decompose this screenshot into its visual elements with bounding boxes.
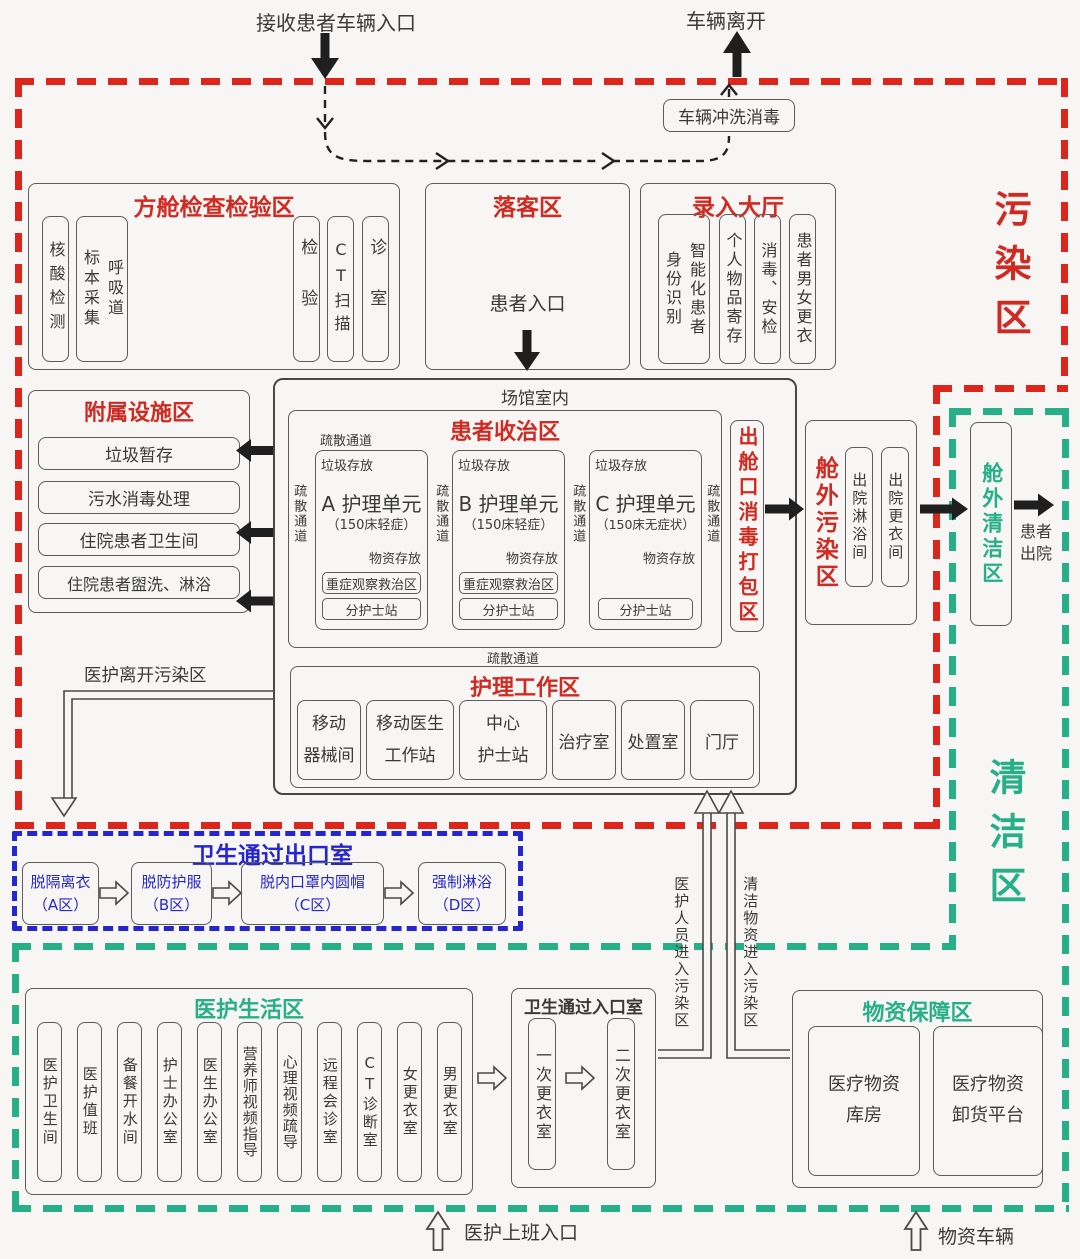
intake-item-deposit: 个人物品寄存	[719, 214, 746, 364]
outside-dirty-title: 舱外污染区	[808, 448, 840, 598]
zone-label-clean: 清洁区	[986, 758, 1023, 943]
exam-item-clinic: 诊室	[362, 216, 389, 362]
unit-b-supply-label: 物资存放	[452, 548, 558, 567]
corridor-label-bc: 疏散通道	[569, 466, 586, 561]
staff-item-doctor-office: 医生办公室	[197, 1022, 222, 1182]
unit-c-trash-label: 垃圾存放	[595, 455, 647, 474]
exam-item-nucleic: 核酸检测	[42, 216, 69, 362]
nursing-item-central-nurse: 中心 护士站	[459, 700, 547, 780]
staff-item-psychology: 心理视频疏导	[277, 1022, 302, 1182]
discharge-arrow-3	[1014, 494, 1054, 517]
vehicle-entry-arrow	[311, 33, 339, 79]
exam-item-specimen: 呼吸道 标本采集	[76, 216, 128, 362]
green-border-inner-left	[949, 408, 956, 950]
green-border-top	[952, 408, 1069, 415]
nursing-title: 护理工作区	[290, 670, 760, 702]
exit-step-d: 强制淋浴 （D区）	[418, 862, 506, 925]
nursing-item-equipment: 移动 器械间	[297, 700, 361, 780]
corridor-label-right: 疏散通道	[703, 466, 720, 561]
aux-item-shower: 住院患者盥洗、淋浴	[38, 566, 240, 599]
discharge-changing-room: 出院更衣间	[881, 447, 909, 587]
unit-a-name: A 护理单元	[315, 490, 428, 514]
red-border-right-upper	[1061, 78, 1068, 390]
exit-step-a: 脱隔离衣 （A区）	[22, 862, 99, 925]
exam-item-ct: CT扫描	[327, 216, 354, 362]
corridor-label-ab: 疏散通道	[432, 466, 449, 561]
staff-item-toilet: 医护卫生间	[37, 1022, 62, 1182]
unit-b-trash-label: 垃圾存放	[458, 455, 510, 474]
staff-item-women-changing: 女更衣室	[397, 1022, 422, 1182]
nursing-item-treatment-room: 治疗室	[552, 700, 616, 780]
discharge-pack-zone: 出舱口消毒打包区	[730, 420, 764, 632]
intake-item-changing: 患者男女更衣	[789, 214, 816, 364]
aux-item-sewage: 污水消毒处理	[38, 481, 240, 514]
red-border-right-lower	[933, 385, 940, 829]
nursing-item-lobby: 门厅	[690, 700, 754, 780]
red-border-top	[15, 78, 1068, 85]
exit-step-b: 脱防护服 （B区）	[131, 862, 212, 925]
vehicle-leave-label: 车辆离开	[686, 5, 766, 34]
red-border-left	[15, 78, 22, 829]
logistics-title: 物资保障区	[792, 995, 1043, 1027]
aux-area-title: 附属设施区	[28, 395, 250, 427]
patient-entrance-label: 患者入口	[460, 290, 595, 314]
vehicle-leave-arrow	[723, 31, 751, 77]
patient-discharge-label: 患者 出院	[1010, 520, 1062, 566]
staff-item-ct-room: CT诊断室	[357, 1022, 382, 1182]
exam-item-lab: 检验	[293, 216, 320, 362]
vehicle-entry-label: 接收患者车辆入口	[256, 7, 416, 36]
unit-a-nurse-box: 分护士站	[322, 598, 421, 620]
corridor-label-bottom: 疏散通道	[477, 649, 549, 665]
staff-item-nurse-office: 护士办公室	[157, 1022, 182, 1182]
aux-item-trash: 垃圾暂存	[38, 437, 240, 470]
entry-room-title: 卫生通过入口室	[511, 993, 656, 1018]
unit-c-supply-label: 物资存放	[589, 548, 695, 567]
unit-c-nurse-box: 分护士站	[598, 598, 693, 620]
unit-b-obs-box: 重症观察救治区	[459, 572, 558, 594]
unit-a-obs-box: 重症观察救治区	[322, 572, 421, 594]
outside-clean-zone: 舱外清洁区	[970, 422, 1012, 626]
nursing-item-disposal-room: 处置室	[621, 700, 685, 780]
unit-a-capacity: （150床轻症）	[315, 514, 428, 532]
unit-b-name: B 护理单元	[452, 490, 565, 514]
zone-label-contaminated: 污染区	[991, 190, 1028, 360]
staff-item-nutrition: 营养师视频指导	[237, 1022, 262, 1182]
aux-item-toilet: 住院患者卫生间	[38, 523, 240, 556]
red-border-jog	[933, 385, 1068, 392]
nursing-item-doctor-station: 移动医生 工作站	[366, 700, 454, 780]
dropoff-title: 落客区	[425, 188, 630, 222]
intake-item-security: 消毒、安检	[754, 214, 781, 364]
supply-vehicle-label: 物资车辆	[938, 1222, 1014, 1249]
intake-item-id: 智能化患者 身份识别	[658, 214, 710, 364]
staff-item-duty: 医护值班	[77, 1022, 102, 1182]
staff-item-men-changing: 男更衣室	[437, 1022, 462, 1182]
logistics-warehouse: 医疗物资 库房	[808, 1026, 920, 1176]
staff-item-teleconsult: 远程会诊室	[317, 1022, 342, 1182]
discharge-arrow-2	[920, 498, 968, 521]
staff-living-title: 医护生活区	[25, 992, 473, 1024]
venue-label: 场馆室内	[273, 384, 797, 409]
entry-step-second: 二次更衣室	[607, 1018, 635, 1170]
hospital-layout-diagram: 污染区 清洁区 接收患者车辆入口 车辆离开 车辆冲洗消毒 方舱检查检验区 核酸检…	[0, 0, 1080, 1259]
unit-a-trash-label: 垃圾存放	[321, 455, 373, 474]
corridor-label-left: 疏散通道	[290, 466, 307, 561]
unit-a-supply-label: 物资存放	[315, 548, 421, 567]
entry-step-first: 一次更衣室	[528, 1018, 556, 1170]
corridor-label-top: 疏散通道	[320, 430, 372, 449]
supply-corridor-label: 清洁物资进入污染区	[739, 843, 761, 1061]
staff-entry-label: 医护上班入口	[464, 1218, 578, 1245]
unit-c-name: C 护理单元	[589, 490, 702, 514]
unit-c-capacity: （150床无症状）	[589, 514, 702, 532]
staff-leave-label: 医护离开污染区	[84, 662, 207, 687]
unit-b-capacity: （150床轻症）	[452, 514, 565, 532]
unit-b-nurse-box: 分护士站	[459, 598, 558, 620]
green-border-right	[1062, 408, 1069, 1212]
red-border-bottom	[15, 822, 940, 829]
discharge-shower-room: 出院淋浴间	[845, 447, 873, 587]
staff-corridor-label: 医护人员进入污染区	[670, 843, 692, 1061]
staff-item-pantry: 备餐开水间	[117, 1022, 142, 1182]
logistics-unloading: 医疗物资 卸货平台	[933, 1026, 1043, 1176]
staff-leave-arrow	[52, 691, 273, 816]
green-border-cross	[12, 943, 956, 950]
green-border-bottom	[12, 1205, 1069, 1212]
green-border-left	[12, 943, 19, 1212]
vehicle-wash-box: 车辆冲洗消毒	[663, 99, 795, 132]
exit-step-c: 脱内口罩内圆帽 （C区）	[241, 862, 384, 925]
